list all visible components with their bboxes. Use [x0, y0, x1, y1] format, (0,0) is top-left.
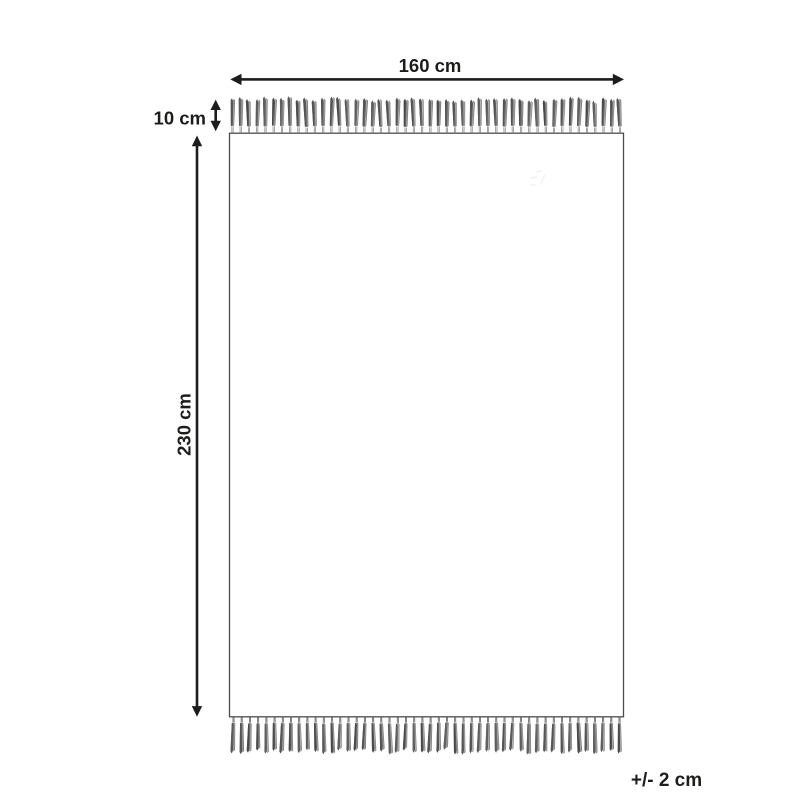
svg-text:10 cm: 10 cm: [154, 107, 206, 128]
svg-text:+/- 2 cm: +/- 2 cm: [631, 770, 702, 791]
svg-text:160 cm: 160 cm: [399, 55, 462, 76]
svg-text:230 cm: 230 cm: [174, 393, 195, 456]
